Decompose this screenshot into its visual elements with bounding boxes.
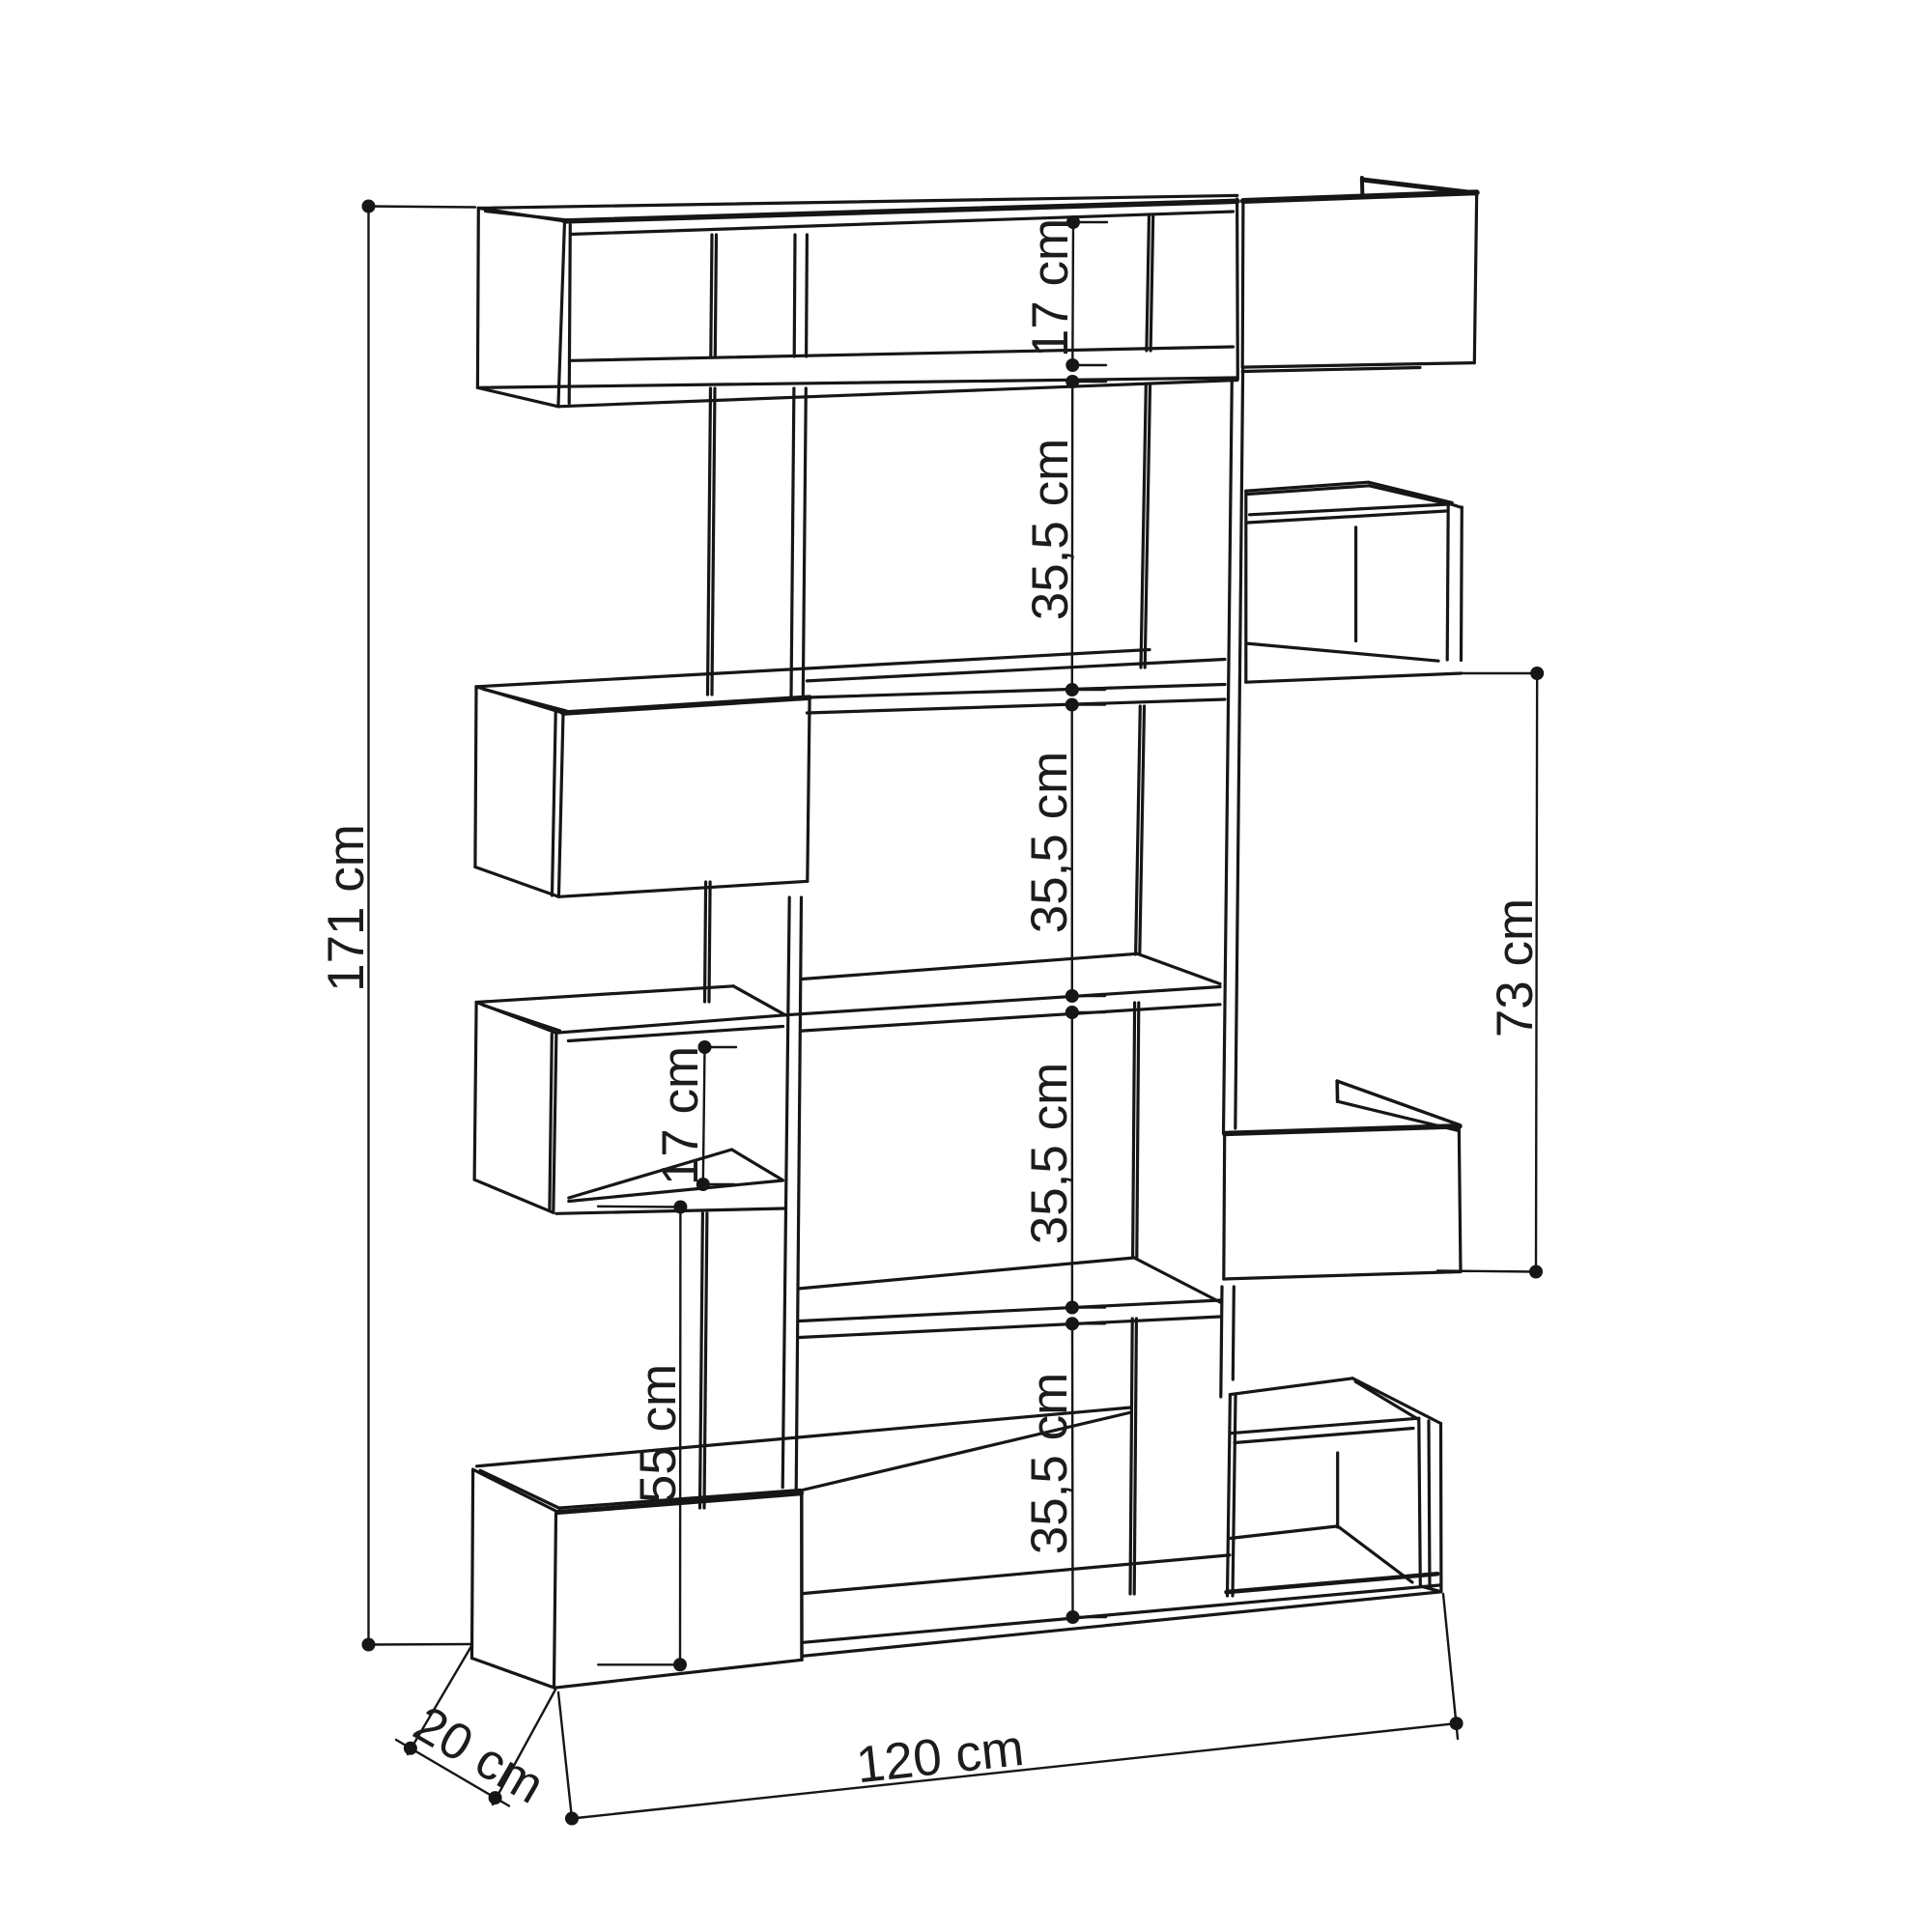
svg-text:35,5 cm: 35,5 cm xyxy=(1021,1063,1078,1245)
svg-text:73 cm: 73 cm xyxy=(1487,898,1544,1037)
svg-text:17 cm: 17 cm xyxy=(1022,218,1079,357)
svg-text:35,5 cm: 35,5 cm xyxy=(1021,1373,1078,1555)
svg-text:35,5 cm: 35,5 cm xyxy=(1021,752,1078,934)
svg-text:35,5 cm: 35,5 cm xyxy=(1022,439,1079,621)
svg-text:171 cm: 171 cm xyxy=(318,824,375,992)
svg-text:55 cm: 55 cm xyxy=(630,1364,687,1503)
svg-text:17 cm: 17 cm xyxy=(652,1046,709,1185)
